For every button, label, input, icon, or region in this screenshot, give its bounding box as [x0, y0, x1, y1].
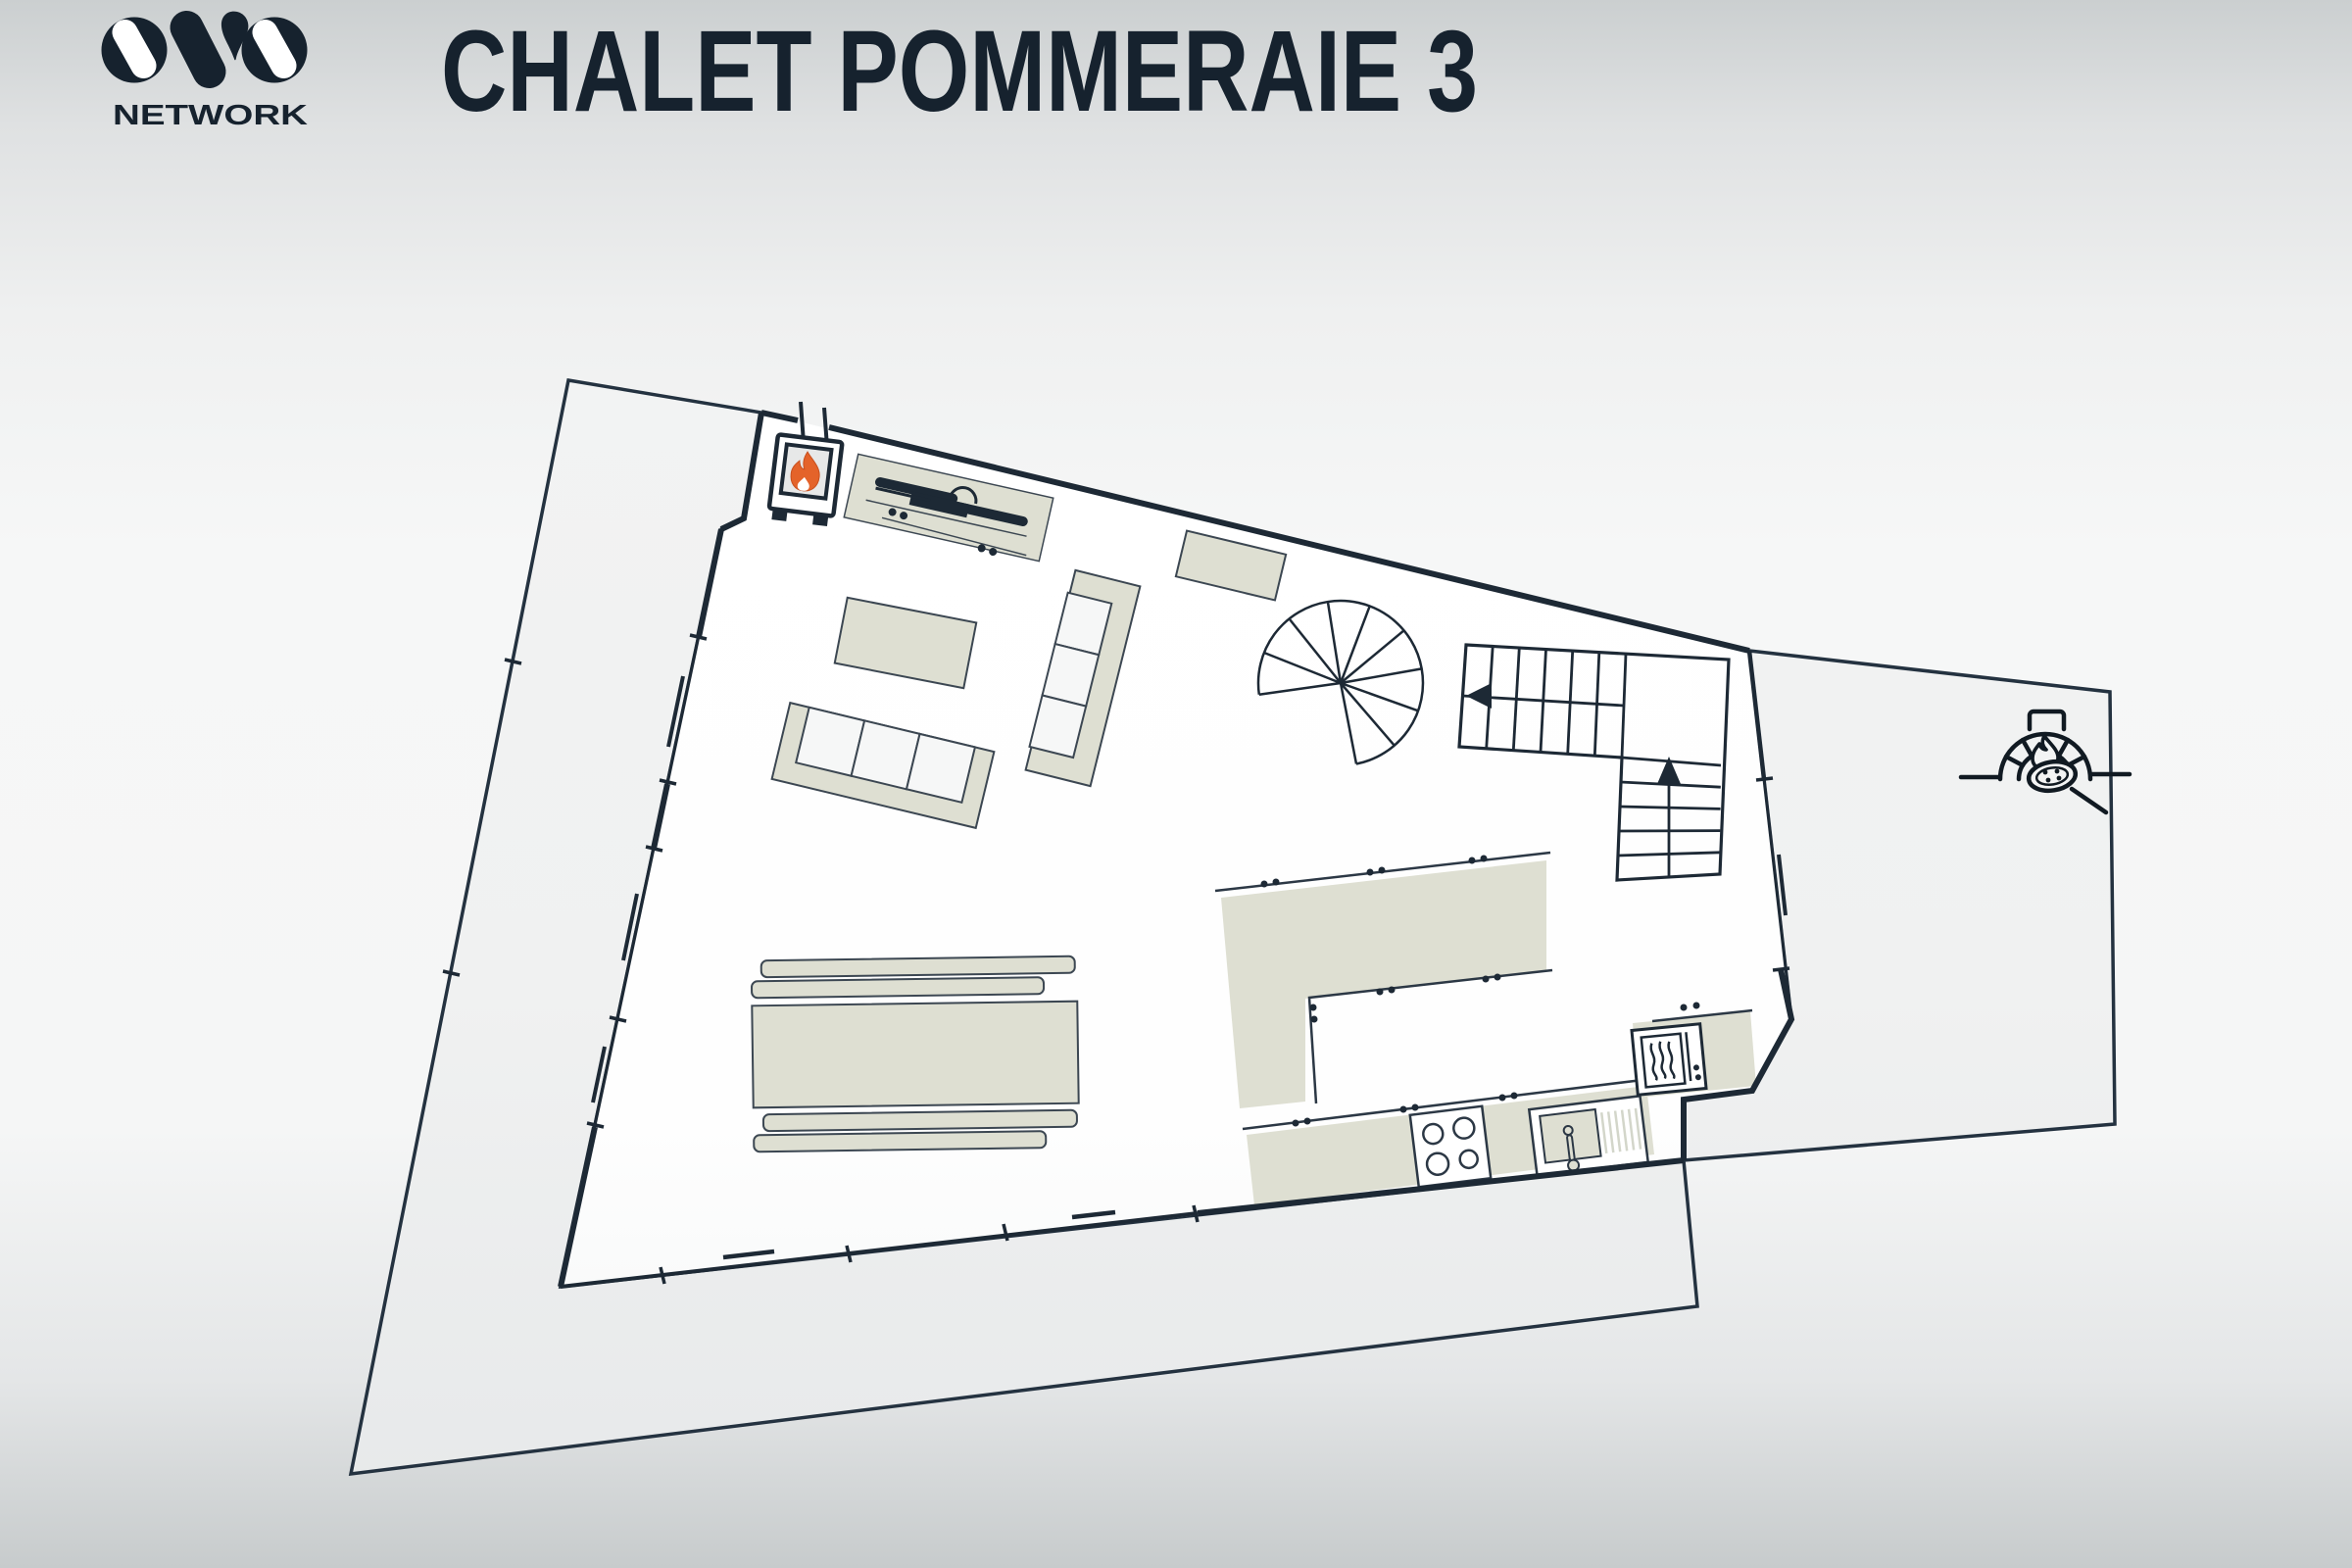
- svg-text:CHALET POMMERAIE 3: CHALET POMMERAIE 3: [441, 7, 1478, 136]
- svg-text:NETWORK: NETWORK: [113, 100, 308, 131]
